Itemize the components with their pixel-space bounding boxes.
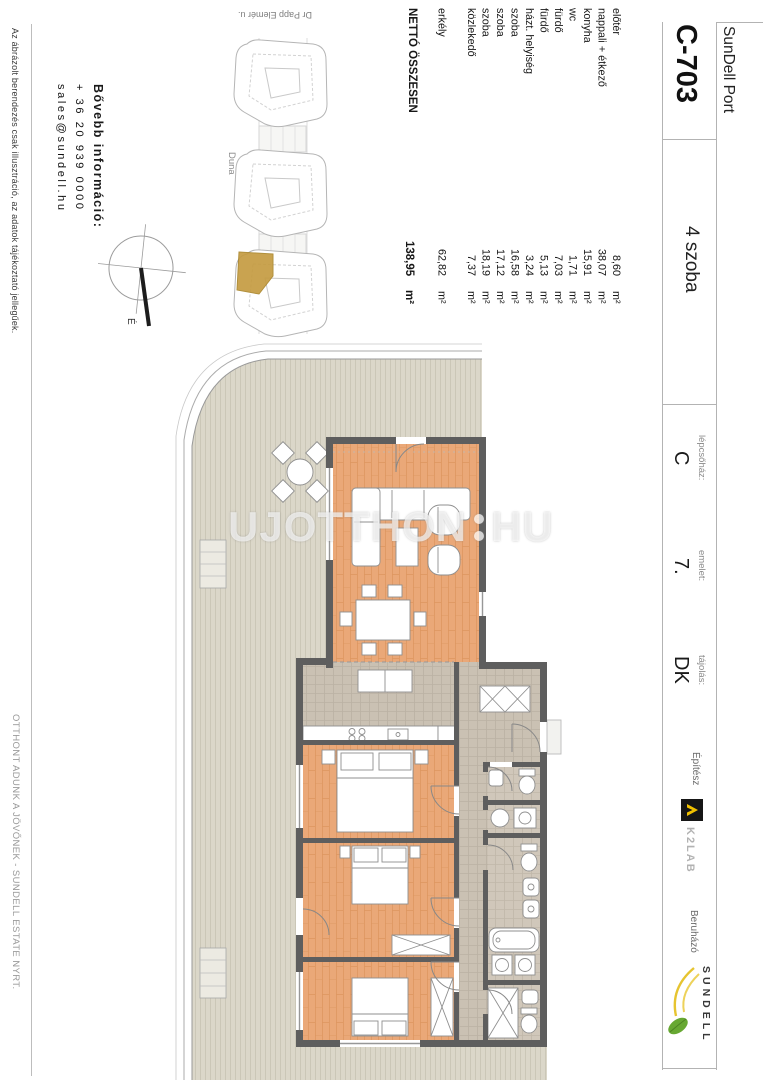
- sink: [522, 990, 538, 1004]
- river-label: Duna: [226, 152, 237, 212]
- table-row: konyha15,91m²: [581, 8, 593, 304]
- k2lab-logo-icon: [681, 799, 703, 821]
- table-row: fürdő5,13m²: [538, 8, 550, 304]
- hand-basin: [489, 770, 503, 786]
- sink: [523, 878, 539, 896]
- table-row: házt. helyiség3,24m²: [523, 8, 535, 304]
- architect-label: Építész: [690, 752, 701, 785]
- table-row: előtér8,60m²: [610, 8, 622, 304]
- bed: [340, 846, 420, 904]
- kitchen-island: [358, 670, 412, 692]
- table-row: szoba18,19m²: [480, 8, 492, 304]
- table-row: szoba16,58m²: [509, 8, 521, 304]
- column-rule: [662, 404, 716, 405]
- site-building: [234, 40, 327, 337]
- dryer: [515, 955, 535, 975]
- column-rule: [716, 22, 763, 23]
- kitchen-counter: [303, 726, 456, 742]
- washer: [492, 955, 512, 975]
- room-table: előtér8,60m² nappali + étkező38,07m² kon…: [403, 8, 622, 304]
- column-rule: [662, 139, 716, 140]
- disclaimer-text: Az ábrázolt berendezés csak illusztráció…: [10, 28, 20, 373]
- unit-rooms: 4 szoba: [680, 226, 702, 293]
- table-row-balcony: erkély62,82m²: [436, 8, 448, 304]
- contact-phone: + 36 20 939 0000: [70, 84, 88, 284]
- toilet: [519, 769, 535, 794]
- contact-email: sales@sundell.hu: [52, 84, 70, 284]
- floor-plan: [160, 340, 660, 1080]
- toilet: [521, 1008, 537, 1033]
- table-row: közlekedő7,37m²: [465, 8, 477, 304]
- compass-icon: É: [98, 222, 193, 337]
- sink: [523, 900, 539, 918]
- coffee-table: [396, 528, 418, 566]
- toilet: [521, 844, 537, 871]
- table-row-total: NETTÓ ÖSSZESEN138,95m²: [403, 8, 418, 304]
- table-row: wc1,71m²: [567, 8, 579, 304]
- bed: [322, 750, 428, 832]
- table-row: szoba17,12m²: [494, 8, 506, 304]
- developer-label: Beruházó: [688, 910, 699, 953]
- table-row: fürdő7,03m²: [552, 8, 564, 304]
- column-rule: [716, 22, 717, 1070]
- entrance-stoop: [547, 720, 561, 754]
- architect-name: K2LAB: [684, 827, 696, 874]
- floorplan-sheet: Az ábrázolt berendezés csak illusztráció…: [0, 0, 763, 1080]
- bed: [352, 978, 408, 1036]
- wardrobe: [392, 935, 450, 955]
- info-orientation: tájolás: DK: [669, 622, 709, 718]
- info-floor: emelet: 7.: [669, 518, 709, 614]
- table-row: nappali + étkező38,07m²: [596, 8, 608, 304]
- info-staircase: lépcsőház: C: [669, 410, 709, 506]
- bathtub: [489, 928, 539, 952]
- slogan-text: OTTHONT ADUNK A JÖVŐNEK - SUNDELL ESTATE…: [10, 714, 21, 1064]
- column-rule: [662, 1068, 716, 1069]
- left-frame-line: [31, 24, 32, 1076]
- unit-code: C-703: [669, 24, 702, 103]
- column-rule: [662, 22, 663, 1070]
- developer-name: SUNDELL: [700, 966, 712, 1044]
- street-label: Dr Papp Elemér u.: [226, 10, 324, 20]
- svg-text:É: É: [125, 318, 138, 325]
- wardrobe: [431, 978, 453, 1036]
- entry-wardrobe: [480, 686, 530, 712]
- sundell-logo-icon: [666, 962, 702, 1062]
- project-name: SunDell Port: [719, 26, 737, 113]
